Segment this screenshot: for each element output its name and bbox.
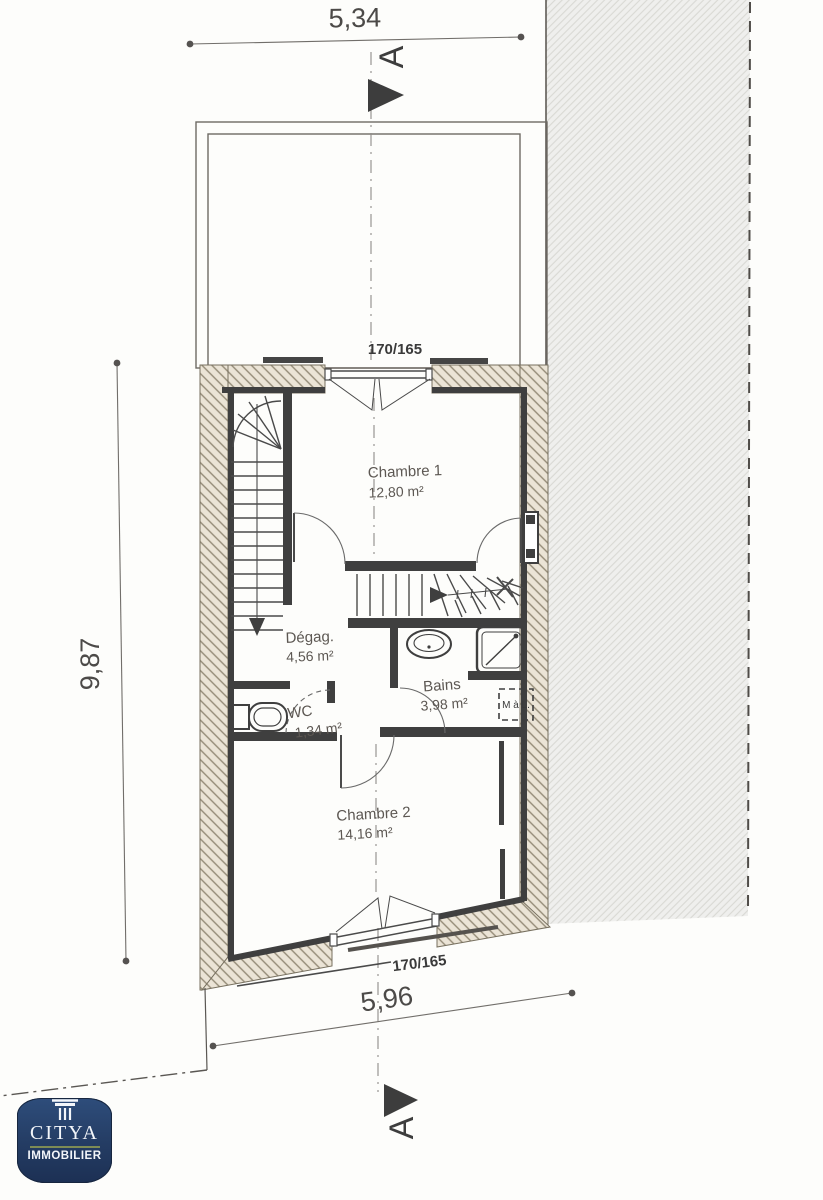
window-top-label: 170/165 (368, 341, 422, 358)
section-arrow-bottom (384, 1084, 418, 1117)
window-sill (263, 357, 323, 363)
column-capital-icon (48, 1098, 82, 1122)
citya-logo: CITYA IMMOBILIER (17, 1098, 112, 1183)
window-sill (430, 358, 488, 364)
parcel-boundary-lines (0, 988, 207, 1096)
stair-down-arrow (249, 618, 265, 636)
washing-machine-label: M à L. (502, 700, 530, 711)
staircase-central (357, 574, 523, 617)
chambre1-area: 12,80 m² (368, 483, 424, 501)
room-labels: Chambre 1 12,80 m² Dégag. 4,56 m² WC 1,3… (285, 341, 468, 975)
shower-icon (477, 627, 525, 673)
floor-plan-svg: M à L. Chambre 1 12,80 m² Dégag. 4,56 m²… (0, 0, 823, 1200)
window-bottom-label: 170/165 (392, 952, 448, 975)
logo-brand-text: CITYA (30, 1123, 99, 1143)
chambre2-name: Chambre 2 (336, 804, 411, 825)
degagement-area: 4,56 m² (286, 647, 334, 665)
dimension-top-width: 5,34 (328, 3, 381, 34)
degagement-name: Dégag. (285, 628, 334, 647)
logo-tagline-text: IMMOBILIER (28, 1151, 102, 1163)
toilet-icon (231, 703, 287, 731)
dimension-left-height: 9,87 (75, 638, 105, 691)
radiator-icon (524, 512, 538, 563)
sink-icon (407, 630, 451, 658)
chambre2-area: 14,16 m² (337, 824, 393, 843)
section-marker-top-label: A (373, 45, 411, 68)
dimension-bottom-width: 5,96 (359, 981, 415, 1018)
scanned-floor-plan-page: M à L. Chambre 1 12,80 m² Dégag. 4,56 m²… (0, 0, 823, 1200)
section-axis-line (371, 52, 378, 1092)
wc-name: WC (287, 702, 314, 722)
section-marker-bottom-label: A (383, 1116, 421, 1139)
staircase-left (231, 396, 283, 636)
bains-area: 3,98 m² (420, 694, 469, 713)
section-arrow-top (368, 79, 404, 112)
logo-separator (30, 1146, 100, 1148)
bains-name: Bains (423, 676, 462, 696)
chambre1-name: Chambre 1 (368, 462, 443, 482)
neighbor-parcel-strip (546, 0, 750, 924)
section-markers: A A (368, 45, 421, 1139)
